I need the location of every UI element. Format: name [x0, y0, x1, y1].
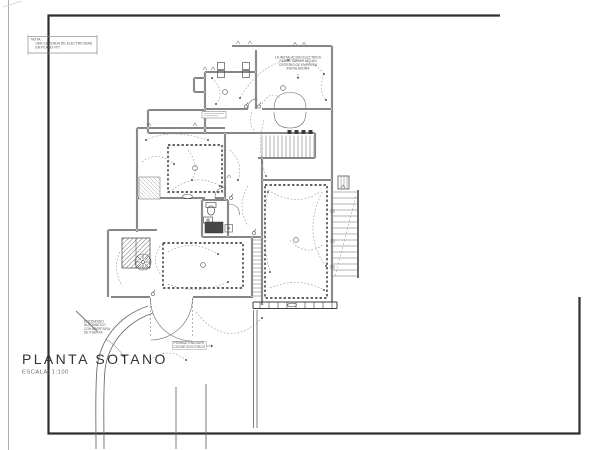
wall-lamp [183, 195, 193, 199]
garage-door-arc [151, 298, 193, 340]
chimney-hatch [139, 177, 160, 199]
narrow-stair [252, 240, 262, 296]
drawing-sheet: NOTA: VER LEYENDA DE ELECTRICIDAD EN PLA… [0, 0, 600, 450]
toilet-tank [206, 203, 216, 208]
step-oval [288, 303, 297, 307]
installer-note: LA INSTALACION ELECTRICA PUEDE VARIAR SE… [273, 56, 323, 71]
note-box: NOTA: VER LEYENDA DE ELECTRICIDAD EN PLA… [31, 38, 92, 50]
window-symbols [218, 63, 250, 78]
heater-box [205, 222, 223, 233]
scale-label: ESCALA: 1:100 [22, 369, 69, 375]
note-line: EN PLANO Nº7 [36, 46, 93, 50]
page-title: PLANTA SOTANO [22, 351, 168, 367]
ev-socket-note: POSIBLE ENCHUFE COCHE ELECTRICO [172, 341, 207, 350]
dashed-zones [163, 145, 327, 298]
auto-on-note: ENCENDIDO AUTOMATICO CON APERTURA DE PUE… [84, 320, 110, 335]
junction-dots [145, 59, 327, 361]
south-wall [253, 302, 337, 309]
equipment-label-box [202, 112, 226, 119]
light-symbols [183, 86, 299, 268]
exterior-stair [333, 176, 358, 278]
